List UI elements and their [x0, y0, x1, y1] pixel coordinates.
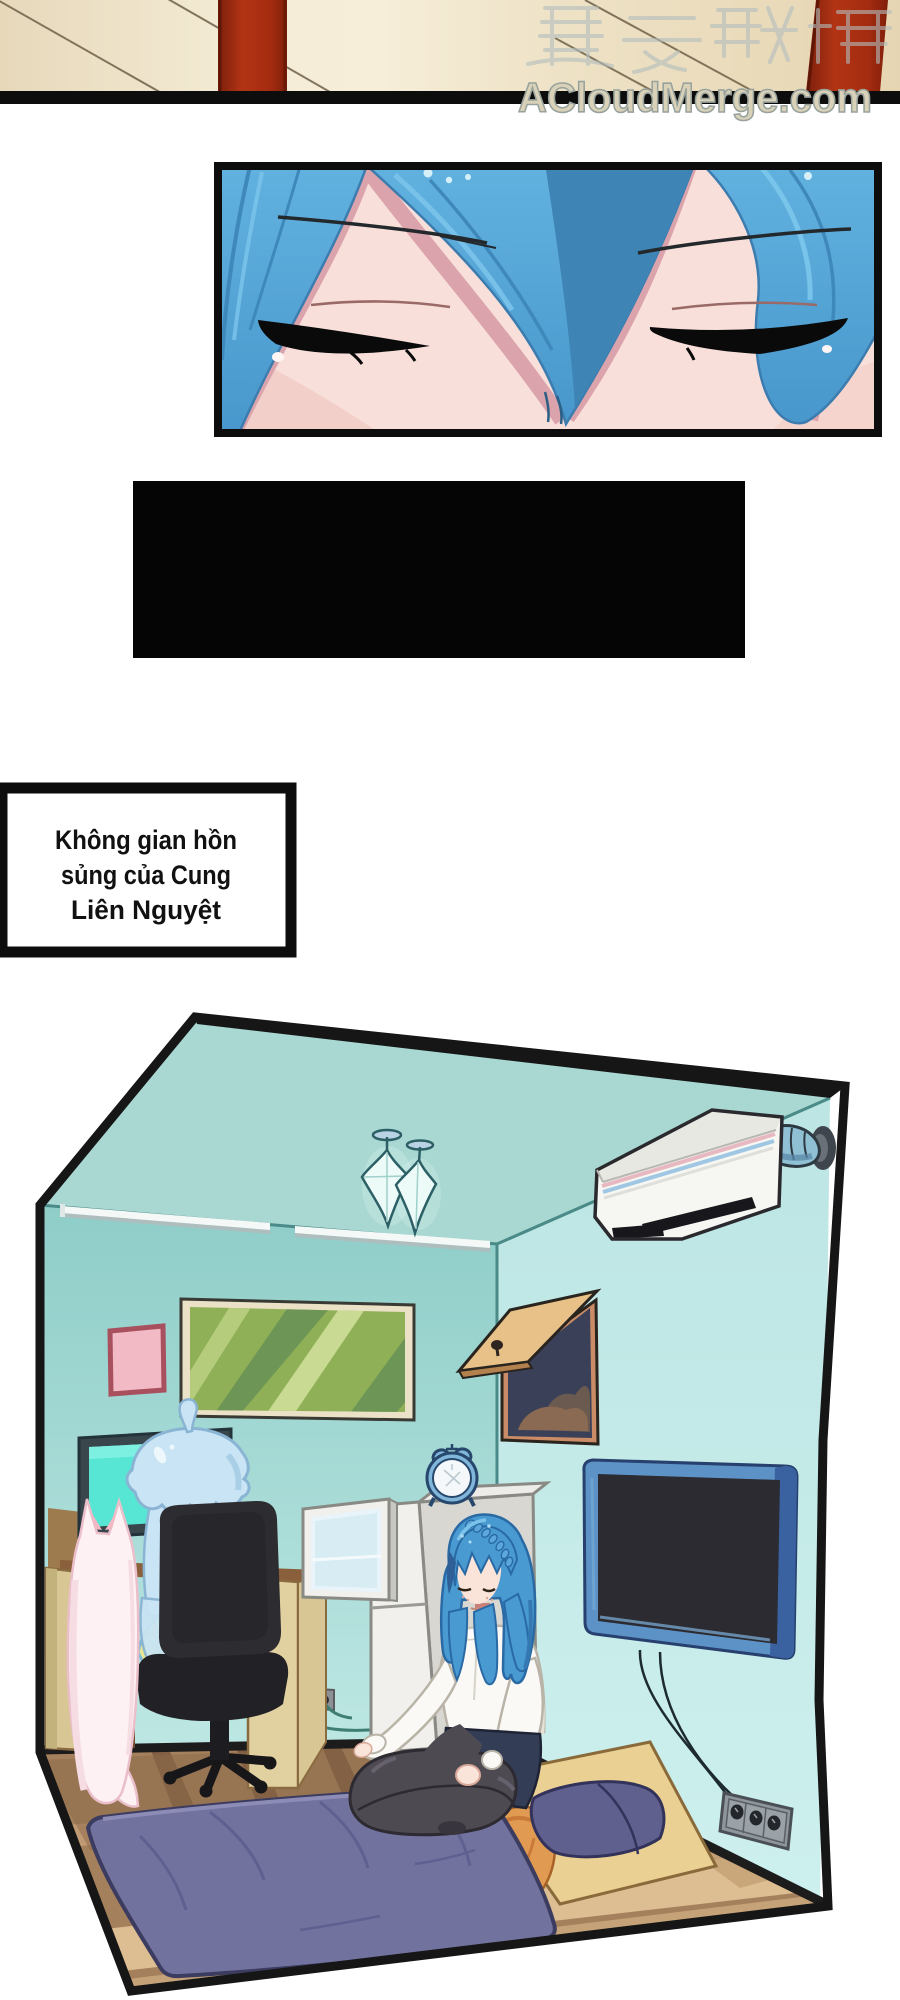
- svg-text:sủng của Cung: sủng của Cung: [61, 860, 231, 890]
- svg-text:Liên Nguyệt: Liên Nguyệt: [71, 895, 221, 925]
- svg-text:Không gian hồn: Không gian hồn: [55, 825, 237, 855]
- svg-text:ACloudMerge.com: ACloudMerge.com: [518, 74, 872, 121]
